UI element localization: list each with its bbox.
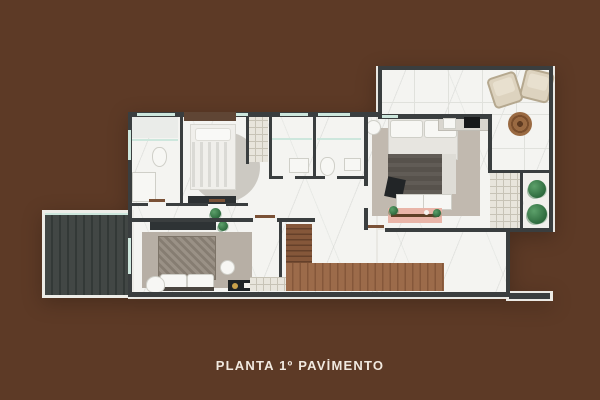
door-bedroom2	[255, 215, 275, 218]
wall-baths-bottom-c	[337, 176, 364, 179]
plan-caption: PLANTA 1º PAVİMENTO	[0, 358, 600, 373]
vanity-bath1	[132, 172, 156, 202]
shower-floor-bath1	[132, 116, 178, 138]
entry-step	[509, 293, 550, 299]
toilet-bath3	[320, 157, 335, 176]
headboard-bedroom2	[158, 287, 214, 291]
shower-glass-bath1	[132, 139, 178, 141]
sink-bath2	[289, 158, 309, 173]
wall-terrace-left	[378, 66, 382, 117]
wall-bedroom2-top-b	[277, 218, 315, 222]
walkin-closet	[490, 172, 520, 228]
master-duvet-fold	[442, 154, 456, 194]
shower-glass-bath2	[272, 138, 312, 140]
wall-closet-planter	[520, 172, 523, 230]
wall-right	[549, 66, 553, 232]
sink-bath3	[344, 158, 361, 171]
wall-row1-bottom-c	[226, 203, 248, 206]
planter-plant-bottom	[527, 204, 547, 224]
pendant-lamp-master	[366, 120, 381, 135]
entry-step-frame	[506, 291, 553, 301]
single-bed	[190, 124, 236, 190]
plan-caption-text: PLANTA 1º PAVİMENTO	[216, 358, 384, 373]
bench-cushion-divider	[423, 195, 424, 209]
chair-cushion	[492, 76, 516, 96]
wall-baths-bottom-a	[269, 176, 283, 179]
floor-plan	[0, 0, 600, 400]
window-bath1	[137, 113, 175, 116]
master-pillow-left	[390, 120, 423, 138]
wall-bedroom2-top-a	[130, 218, 253, 222]
planter-plant-top	[528, 180, 546, 198]
wall-bath1-bedroom1	[180, 114, 183, 206]
desk-candle	[424, 210, 429, 215]
window-bath2	[280, 113, 308, 116]
gold-dish	[232, 283, 238, 289]
round-side-table	[508, 112, 532, 136]
pergola-glass-edge	[45, 213, 131, 215]
wall-right-lower	[506, 228, 510, 297]
window-left-bath	[128, 130, 131, 160]
sphere-lamp	[220, 260, 235, 275]
window-bedroom2	[128, 238, 131, 274]
desk-shelf	[391, 214, 439, 217]
tv-panel-master	[464, 117, 480, 128]
headboard-shelf-bedroom1	[184, 112, 236, 121]
wall-master-bottom	[385, 228, 506, 232]
console-plant-bedroom2	[218, 221, 228, 231]
pillow	[195, 128, 231, 141]
wall-bath2-bath3	[313, 114, 316, 179]
window-bath3	[318, 113, 350, 116]
toilet-bath1	[152, 147, 167, 167]
wall-bedroom2-right	[279, 220, 282, 277]
tv-console-bedroom2	[150, 222, 216, 230]
wall-baths-bottom-b	[295, 176, 325, 179]
door-bedroom1	[209, 199, 225, 202]
striped-duvet	[192, 142, 232, 187]
desk-plant-left	[389, 206, 398, 215]
counter-sink	[443, 118, 456, 129]
chair-cushion	[526, 73, 549, 91]
garage-pergola	[42, 210, 134, 298]
window-master	[382, 115, 398, 118]
wall-step-in	[506, 228, 553, 232]
wall-bedroom1-linen	[246, 114, 249, 164]
wall-hall-master-upper	[364, 114, 368, 186]
wall-row1-bottom-b	[166, 203, 208, 206]
shower-glass-bath3	[317, 138, 361, 140]
door-bath1	[149, 199, 165, 202]
wall-bottom	[128, 292, 510, 297]
wall-row1-bottom-a	[130, 203, 148, 206]
staircase	[286, 224, 312, 264]
armchair-bedroom2	[146, 276, 165, 293]
door-master	[368, 225, 384, 228]
wall-terrace-top	[378, 66, 553, 70]
desk-plant-right	[433, 209, 441, 217]
wall-master-right	[488, 114, 492, 172]
wood-deck	[286, 263, 444, 291]
pergola-slats	[45, 213, 131, 295]
wall-linen-bath2	[269, 114, 272, 179]
linen-closet	[249, 116, 268, 162]
